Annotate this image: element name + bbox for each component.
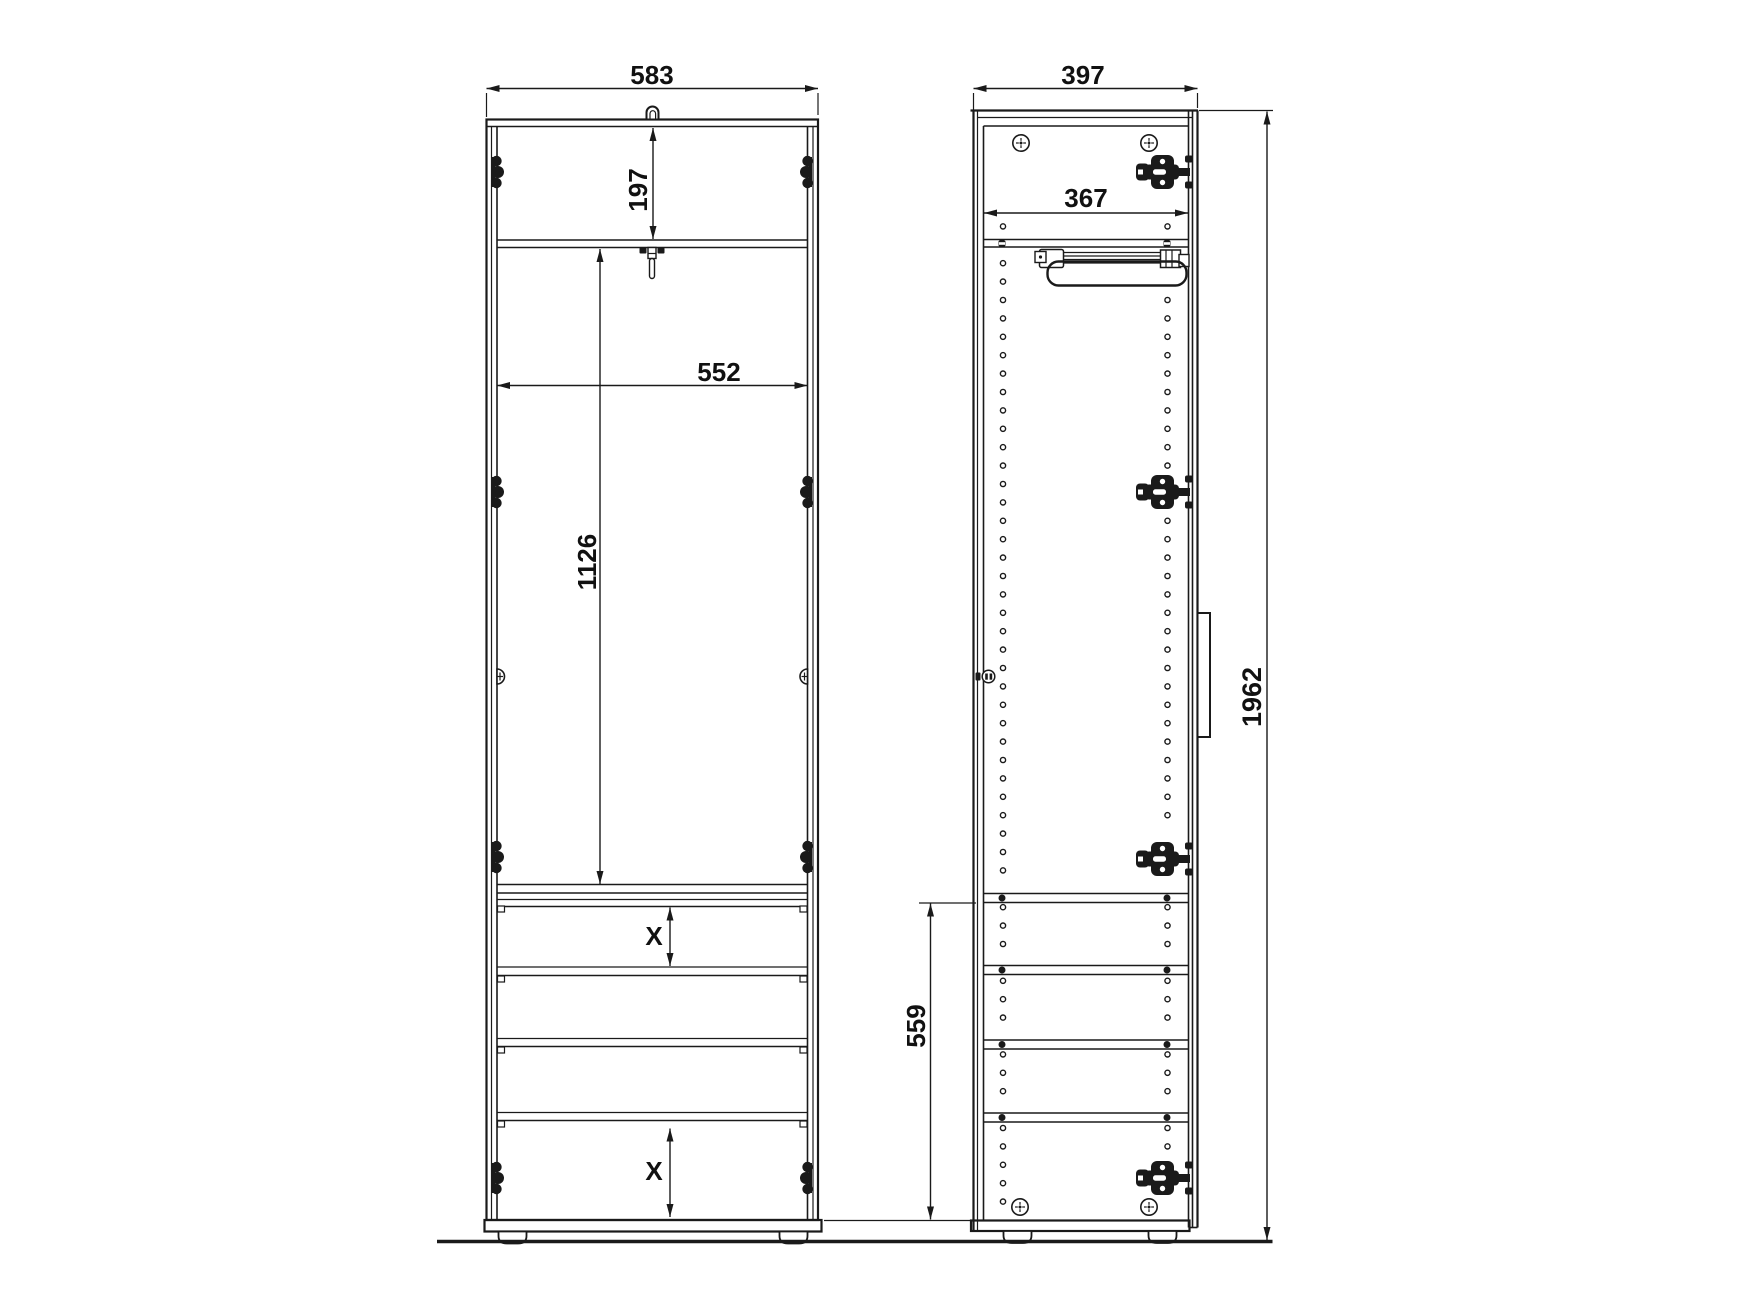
technical-drawing-page: 583 197 552 1126 X X — [0, 0, 1749, 1311]
shelf-clip-icon — [800, 1121, 807, 1127]
dimension-shelf-gap-upper: X — [645, 908, 670, 967]
shelf-pin-hole — [1000, 224, 1005, 229]
shelf-pin-hole — [1000, 261, 1005, 266]
dim-label-wardrobe-compartment: 1126 — [572, 534, 602, 590]
shelf-pin-hole — [1000, 941, 1005, 946]
hinge-icon — [1136, 155, 1193, 189]
shelf-pin-holes-back-column — [1000, 224, 1005, 1204]
shelf-pin-hole — [1000, 1070, 1005, 1075]
dim-label-overall-width: 583 — [630, 60, 673, 90]
shelf-pin-hole — [1165, 537, 1170, 542]
shelf-clip-icon — [800, 1047, 807, 1053]
shelf-pin-hole — [1000, 997, 1005, 1002]
wall-mount-hook-icon — [647, 107, 659, 119]
shelf-pin-hole — [1000, 389, 1005, 394]
shelf-pin-hole — [1000, 739, 1005, 744]
shelf-pin-hole — [1165, 1125, 1170, 1130]
shelf-pin-hole — [1000, 757, 1005, 762]
shelf-pin-hole — [1000, 518, 1005, 523]
shelf-pin-hole — [1000, 905, 1005, 910]
shelf-pin-hole — [1000, 592, 1005, 597]
shelf-pin-hole — [1165, 371, 1170, 376]
front-shelves — [497, 240, 808, 1127]
shelf-pin-hole — [1000, 831, 1005, 836]
shelf-pin-hole — [1000, 353, 1005, 358]
shelf-pin-hole — [1165, 813, 1170, 818]
dim-label-lower-section: 559 — [901, 1004, 931, 1047]
shelf-pin-hole — [1000, 923, 1005, 928]
shelf-pin-hole — [1165, 1052, 1170, 1057]
shelf-pin-hole — [1165, 629, 1170, 634]
shelf-pin-hole — [1165, 573, 1170, 578]
shelf-pin-hole — [1165, 794, 1170, 799]
shelf-pin-hole — [1165, 389, 1170, 394]
shelf-pin-hole — [1165, 665, 1170, 670]
shelf-pin-hole — [1165, 997, 1170, 1002]
dim-label-overall-depth: 397 — [1061, 60, 1104, 90]
shelf-pin-hole — [1000, 1144, 1005, 1149]
shelf-pin-hole — [1165, 941, 1170, 946]
screw-icon — [1141, 135, 1157, 151]
shelf-pin-hole — [1000, 1162, 1005, 1167]
front-carcass — [485, 120, 822, 1232]
screw-icon — [1141, 1199, 1157, 1215]
shelf-pin-hole — [1000, 316, 1005, 321]
dim-label-overall-height: 1962 — [1237, 667, 1267, 727]
lock-knob-side-icon — [976, 670, 995, 683]
shelf-pin-hole — [1165, 224, 1170, 229]
shelf-fitting-icon — [999, 895, 1006, 902]
dimension-overall-depth: 397 — [974, 60, 1198, 114]
shelf-pin-hole — [1000, 555, 1005, 560]
dimension-top-compartment: 197 — [623, 128, 653, 239]
shelf-pin-hole — [1165, 555, 1170, 560]
front-view: 583 197 552 1126 X X — [485, 60, 822, 1244]
door-handle — [1198, 613, 1211, 737]
shelf-pin-hole — [1000, 481, 1005, 486]
dim-label-shelf-gap-lower: X — [645, 1156, 663, 1186]
shelf-pin-holes-front-column — [1165, 224, 1170, 1149]
shelf-fitting-icon — [1164, 1114, 1171, 1121]
dimension-shelf-gap-lower: X — [645, 1129, 670, 1218]
shelf-pin-hole — [1165, 721, 1170, 726]
shelf-pin-hole — [1165, 905, 1170, 910]
shelf-fitting-icon — [999, 1114, 1006, 1121]
shelf-clip-icon — [800, 906, 807, 912]
shelf-pin-hole — [1000, 629, 1005, 634]
shelf-pin-hole — [1000, 702, 1005, 707]
shelf-pin-hole — [1000, 610, 1005, 615]
hinge-icon — [1136, 475, 1193, 509]
shelf-pin-hole — [1000, 573, 1005, 578]
shelf-clip-icon — [800, 976, 807, 982]
pullout-rail-icon — [1035, 250, 1189, 286]
shelf-clip-icon — [498, 1047, 505, 1053]
shelf-pin-hole — [1165, 426, 1170, 431]
shelf-pin-hole — [1165, 757, 1170, 762]
shelf-pin-hole — [1165, 445, 1170, 450]
euro-screw-icons — [1012, 135, 1157, 1215]
shelf-fitting-icon — [999, 967, 1006, 974]
shelf-pin-hole — [1165, 776, 1170, 781]
shelf-pin-hole — [1000, 297, 1005, 302]
shelf-pin-hole — [1000, 868, 1005, 873]
concealed-hinge-icons — [1136, 155, 1193, 1195]
side-shelves — [984, 240, 1189, 1123]
drawing-canvas: 583 197 552 1126 X X — [0, 0, 1749, 1311]
shelf-pin-hole — [1000, 813, 1005, 818]
shelf-fitting-icon — [1164, 967, 1171, 974]
dimension-wardrobe-compartment: 1126 — [572, 249, 602, 884]
shelf-pin-hole — [1165, 702, 1170, 707]
shelf-pin-hole — [1000, 500, 1005, 505]
shelf-clip-icon — [498, 906, 505, 912]
shelf-pin-hole — [1000, 684, 1005, 689]
shelf-pin-hole — [1165, 684, 1170, 689]
shelf-pin-hole — [1000, 334, 1005, 339]
shelf-pin-hole — [1165, 1070, 1170, 1075]
shelf-pin-hole — [1000, 647, 1005, 652]
shelf-pin-hole — [1000, 665, 1005, 670]
shelf-pin-hole — [1000, 776, 1005, 781]
shelf-fitting-icon — [999, 1041, 1006, 1048]
side-view: 397 367 559 1962 — [824, 60, 1273, 1243]
shelf-pin-hole — [1000, 1125, 1005, 1130]
shelf-pin-hole — [1000, 1052, 1005, 1057]
dim-label-top-compartment: 197 — [623, 168, 653, 211]
shelf-pin-hole — [1000, 1089, 1005, 1094]
shelf-pin-hole — [1165, 923, 1170, 928]
shelf-pin-hole — [1165, 1015, 1170, 1020]
shelf-pin-hole — [1000, 721, 1005, 726]
shelf-pin-hole — [1000, 794, 1005, 799]
shelf-pin-hole — [1000, 849, 1005, 854]
shelf-pin-hole — [1165, 610, 1170, 615]
shelf-clip-icon — [498, 976, 505, 982]
shelf-pin-hole — [1000, 1015, 1005, 1020]
shelf-pin-hole — [1000, 463, 1005, 468]
shelf-pin-hole — [1165, 297, 1170, 302]
shelf-pin-hole — [1165, 978, 1170, 983]
shelf-pin-hole — [1000, 978, 1005, 983]
shelf-pin-hole — [1000, 537, 1005, 542]
shelf-pin-hole — [1165, 518, 1170, 523]
shelf-pin-hole — [1165, 353, 1170, 358]
shelf-pin-hole — [1165, 647, 1170, 652]
rail-bracket-front-icon — [640, 248, 665, 279]
shelf-pin-hole — [1000, 371, 1005, 376]
hinge-icon — [1136, 842, 1193, 876]
shelf-pin-hole — [1165, 1144, 1170, 1149]
hinge-icon — [1136, 1161, 1193, 1195]
dimension-lower-section: 559 — [824, 903, 976, 1221]
shelf-clip-icon — [498, 1121, 505, 1127]
shelf-pin-hole — [1000, 1181, 1005, 1186]
shelf-pin-hole — [1165, 592, 1170, 597]
shelf-pin-hole — [1165, 334, 1170, 339]
shelf-pin-hole — [1000, 445, 1005, 450]
screw-icon — [1012, 1199, 1028, 1215]
shelf-pin-hole — [1000, 1199, 1005, 1204]
shelf-pin-hole — [1165, 739, 1170, 744]
shelf-pin-hole — [1000, 426, 1005, 431]
shelf-fitting-icon — [1164, 1041, 1171, 1048]
shelf-fitting-icon — [1164, 895, 1171, 902]
shelf-pin-hole — [1165, 316, 1170, 321]
shelf-pin-hole — [1165, 1089, 1170, 1094]
lock-knob-icons — [497, 669, 808, 684]
screw-icon — [1013, 135, 1029, 151]
shelf-pin-hole — [1165, 408, 1170, 413]
shelf-pin-hole — [1000, 279, 1005, 284]
shelf-pin-hole — [1000, 408, 1005, 413]
shelf-pin-hole — [1165, 463, 1170, 468]
dim-label-shelf-gap-upper: X — [645, 921, 663, 951]
dim-label-interior-depth: 367 — [1064, 183, 1107, 213]
dimension-interior-width: 552 — [497, 357, 808, 387]
dim-label-interior-width: 552 — [697, 357, 740, 387]
